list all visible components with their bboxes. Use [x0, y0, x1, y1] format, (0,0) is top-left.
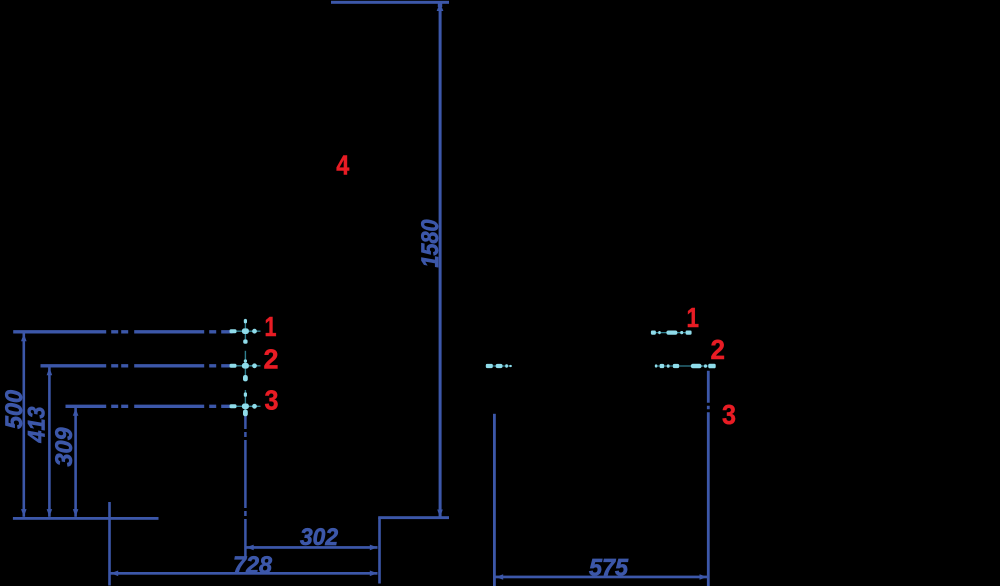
svg-text:575: 575 [589, 555, 628, 582]
svg-text:302: 302 [300, 524, 338, 551]
svg-text:1580: 1580 [417, 219, 444, 267]
svg-text:2: 2 [711, 334, 726, 365]
svg-text:728: 728 [233, 552, 272, 579]
svg-text:309: 309 [51, 427, 78, 466]
svg-text:413: 413 [24, 406, 51, 443]
svg-text:2: 2 [264, 343, 279, 374]
svg-text:1: 1 [687, 302, 700, 333]
svg-text:3: 3 [722, 399, 736, 430]
svg-text:1: 1 [265, 311, 277, 342]
svg-text:4: 4 [336, 149, 349, 180]
svg-text:3: 3 [265, 385, 279, 416]
